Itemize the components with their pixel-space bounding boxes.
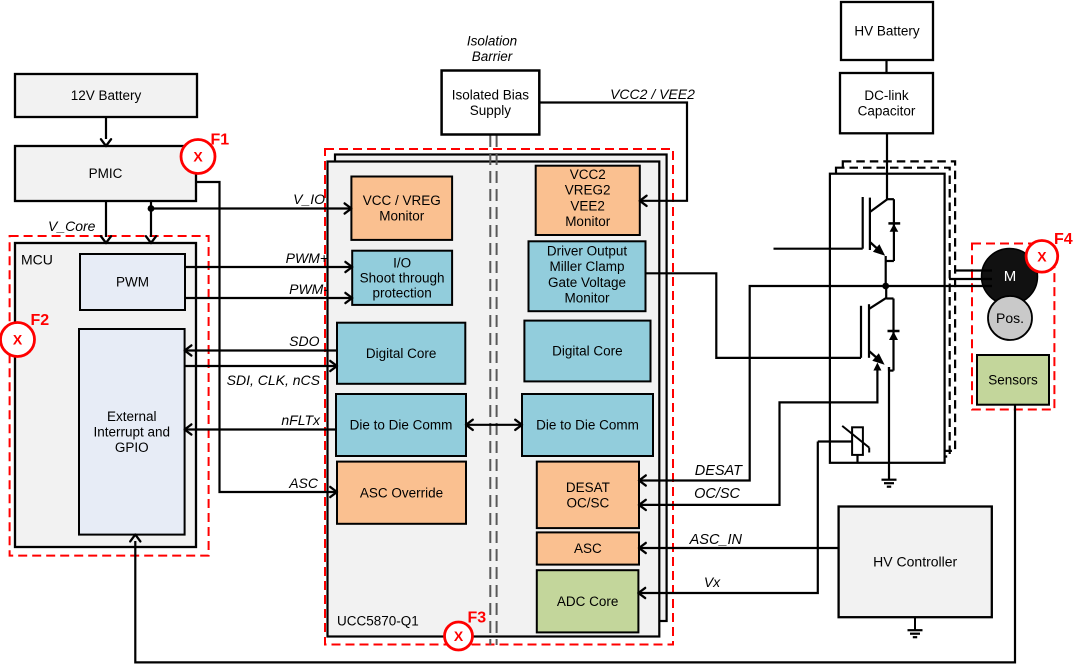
svg-text:VCC / VREG: VCC / VREG (363, 193, 441, 208)
svg-text:SDO: SDO (289, 333, 319, 349)
svg-text:Monitor: Monitor (565, 214, 611, 229)
svg-text:V_IO: V_IO (293, 191, 325, 207)
svg-text:X: X (1037, 249, 1047, 265)
svg-text:12V Battery: 12V Battery (71, 88, 142, 103)
svg-text:X: X (13, 332, 23, 348)
svg-text:MCU: MCU (21, 252, 53, 268)
svg-text:Digital Core: Digital Core (366, 346, 437, 361)
svg-text:nFLTx: nFLTx (281, 412, 321, 428)
svg-text:PWM: PWM (116, 275, 149, 290)
svg-text:PWM+: PWM+ (286, 250, 328, 266)
svg-text:Monitor: Monitor (564, 290, 610, 305)
svg-text:HV Controller: HV Controller (873, 554, 957, 570)
svg-text:Barrier: Barrier (472, 49, 513, 64)
svg-text:VREG2: VREG2 (565, 183, 611, 198)
svg-text:SDI, CLK, nCS: SDI, CLK, nCS (227, 372, 321, 388)
svg-text:X: X (193, 149, 203, 165)
svg-text:F1: F1 (211, 132, 230, 149)
svg-text:OC/SC: OC/SC (567, 495, 610, 510)
svg-text:Sensors: Sensors (988, 373, 1038, 388)
svg-text:Monitor: Monitor (379, 209, 425, 224)
svg-text:OC/SC: OC/SC (694, 486, 740, 502)
svg-text:F4: F4 (1054, 231, 1073, 248)
svg-text:ASC: ASC (574, 541, 602, 556)
svg-text:Isolated Bias: Isolated Bias (452, 87, 530, 102)
svg-text:DESAT: DESAT (695, 463, 743, 479)
svg-text:Miller Clamp: Miller Clamp (549, 259, 624, 274)
svg-text:VCC2: VCC2 (570, 167, 606, 182)
svg-text:HV Battery: HV Battery (854, 24, 920, 39)
svg-text:VCC2 / VEE2: VCC2 / VEE2 (610, 86, 695, 102)
svg-text:External: External (107, 409, 157, 424)
svg-text:GPIO: GPIO (115, 440, 149, 455)
svg-text:Gate Voltage: Gate Voltage (548, 275, 626, 290)
svg-text:ASC Override: ASC Override (360, 485, 443, 500)
svg-text:Die to Die Comm: Die to Die Comm (350, 418, 453, 433)
svg-text:Capacitor: Capacitor (858, 104, 916, 119)
svg-text:ASC: ASC (288, 475, 319, 491)
svg-text:DESAT: DESAT (566, 480, 610, 495)
svg-text:DC-link: DC-link (864, 88, 909, 103)
svg-text:ASC_IN: ASC_IN (689, 532, 743, 548)
svg-text:Supply: Supply (470, 103, 512, 118)
svg-text:PMIC: PMIC (89, 166, 123, 181)
svg-text:Interrupt and: Interrupt and (94, 425, 171, 440)
svg-text:Isolation: Isolation (467, 34, 517, 49)
svg-text:PWM-: PWM- (289, 281, 328, 297)
svg-text:Die to Die Comm: Die to Die Comm (536, 418, 639, 433)
svg-text:V_Core: V_Core (48, 218, 96, 234)
svg-text:M: M (1004, 268, 1017, 285)
svg-text:protection: protection (372, 286, 431, 301)
svg-text:Vx: Vx (704, 574, 721, 590)
svg-text:Pos.: Pos. (996, 310, 1024, 326)
svg-text:X: X (454, 628, 464, 644)
svg-text:Digital Core: Digital Core (552, 344, 623, 359)
svg-text:VEE2: VEE2 (570, 198, 605, 213)
svg-text:F3: F3 (468, 610, 487, 627)
svg-text:Shoot through: Shoot through (360, 271, 445, 286)
svg-text:UCC5870-Q1: UCC5870-Q1 (337, 614, 419, 629)
svg-text:I/O: I/O (393, 255, 411, 270)
svg-text:Driver Output: Driver Output (547, 243, 628, 258)
svg-text:ADC Core: ADC Core (557, 594, 619, 609)
svg-text:F2: F2 (31, 312, 50, 329)
